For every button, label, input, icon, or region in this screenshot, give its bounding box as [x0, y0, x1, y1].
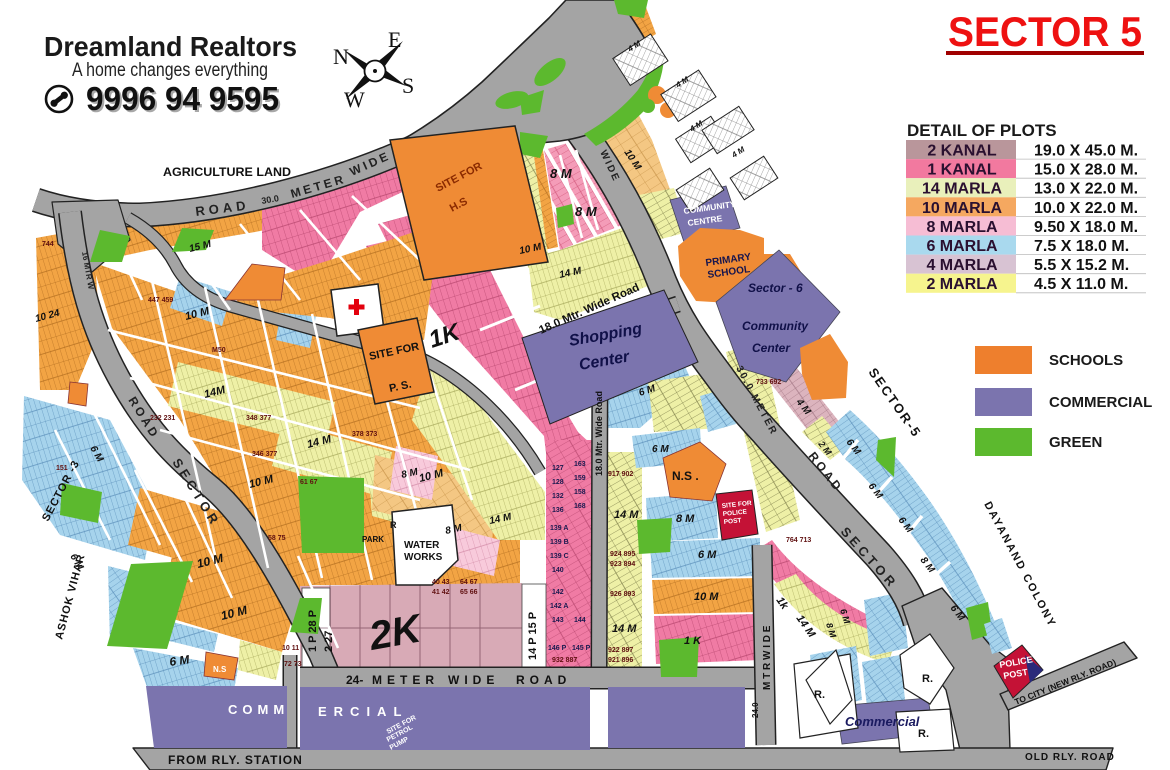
svg-text:8 MARLA: 8 MARLA [926, 219, 998, 236]
svg-text:348 377: 348 377 [246, 415, 271, 422]
svg-text:24.0: 24.0 [751, 702, 760, 718]
svg-text:139 A: 139 A [550, 525, 568, 532]
svg-text:4 MARLA: 4 MARLA [926, 257, 998, 274]
svg-text:142 A: 142 A [550, 603, 568, 610]
svg-text:143: 143 [552, 617, 564, 624]
svg-text:R: R [390, 520, 397, 530]
svg-text:159: 159 [574, 475, 586, 482]
svg-text:132: 132 [552, 493, 564, 500]
svg-text:136: 136 [552, 507, 564, 514]
svg-text:2 MARLA: 2 MARLA [926, 276, 998, 293]
svg-text:N.S: N.S [213, 665, 227, 674]
svg-text:R.: R. [814, 689, 825, 701]
svg-text:6 M: 6 M [698, 549, 717, 561]
svg-text:6 MARLA: 6 MARLA [926, 238, 998, 255]
svg-text:ROAD: ROAD [516, 673, 571, 687]
svg-text:10 MARLA: 10 MARLA [922, 200, 1002, 217]
svg-text:72 73: 72 73 [284, 661, 302, 668]
svg-text:E: E [388, 27, 401, 52]
svg-text:SCHOOLS: SCHOOLS [1049, 352, 1123, 369]
svg-text:WORKS: WORKS [404, 552, 443, 563]
svg-text:926 893: 926 893 [610, 591, 635, 598]
svg-text:Center: Center [752, 341, 791, 355]
svg-text:13.0 X 22.0 M.: 13.0 X 22.0 M. [1034, 181, 1138, 198]
svg-text:METER: METER [372, 673, 439, 687]
svg-text:10 M: 10 M [694, 591, 719, 603]
svg-text:8 M: 8 M [676, 513, 695, 525]
svg-text:733 692: 733 692 [756, 379, 781, 386]
svg-text:8 M: 8 M [550, 166, 573, 181]
svg-text:SECTOR 5: SECTOR 5 [948, 8, 1142, 55]
svg-text:W: W [344, 87, 365, 112]
svg-text:24-: 24- [346, 673, 363, 687]
svg-text:14 M: 14 M [614, 509, 639, 521]
svg-text:151: 151 [56, 465, 68, 472]
svg-text:AGRICULTURE LAND: AGRICULTURE LAND [163, 165, 291, 179]
svg-text:S: S [402, 73, 414, 98]
svg-text:142: 142 [552, 589, 564, 596]
svg-text:PARK: PARK [362, 535, 384, 544]
svg-text:1 KANAL: 1 KANAL [927, 162, 997, 179]
svg-text:2 KANAL: 2 KANAL [927, 143, 997, 160]
svg-text:Sector - 6: Sector - 6 [748, 281, 803, 295]
svg-text:58 75: 58 75 [268, 535, 286, 542]
svg-text:65 66: 65 66 [460, 589, 478, 596]
svg-text:M50: M50 [212, 347, 226, 354]
svg-text:378 373: 378 373 [352, 431, 377, 438]
svg-text:2 27: 2 27 [323, 631, 335, 652]
svg-text:9996 94 9595: 9996 94 9595 [86, 80, 279, 117]
svg-text:146 P: 146 P [548, 645, 567, 652]
svg-text:764 713: 764 713 [786, 537, 811, 544]
svg-text:18.0 Mtr. Wide Road: 18.0 Mtr. Wide Road [594, 391, 604, 476]
svg-text:GREEN: GREEN [1049, 434, 1102, 451]
svg-text:145 P: 145 P [572, 645, 591, 652]
svg-text:163: 163 [574, 461, 586, 468]
svg-text:M T R W I D E: M T R W I D E [762, 625, 773, 690]
svg-text:447 459: 447 459 [148, 297, 173, 304]
svg-text:Commercial: Commercial [845, 714, 920, 729]
svg-text:Community: Community [742, 319, 809, 333]
svg-text:DETAIL OF PLOTS: DETAIL OF PLOTS [907, 121, 1057, 140]
svg-text:140: 140 [552, 567, 564, 574]
svg-text:1 P 28 P: 1 P 28 P [307, 610, 319, 652]
svg-text:COMM: COMM [228, 702, 289, 717]
svg-text:932 887: 932 887 [552, 657, 577, 664]
svg-text:WIDE: WIDE [448, 673, 499, 687]
svg-text:158: 158 [574, 489, 586, 496]
svg-text:6 M: 6 M [168, 652, 191, 669]
svg-text:ERCIAL: ERCIAL [318, 704, 408, 719]
svg-text:921 896: 921 896 [608, 657, 633, 664]
svg-text:923 894: 923 894 [610, 561, 635, 568]
svg-text:168: 168 [574, 503, 586, 510]
svg-text:61 67: 61 67 [300, 479, 318, 486]
svg-text:19.0 X 45.0 M.: 19.0 X 45.0 M. [1034, 143, 1138, 160]
svg-text:COMMERCIAL: COMMERCIAL [1049, 394, 1152, 411]
svg-text:R.: R. [922, 673, 933, 685]
svg-text:N: N [333, 44, 349, 69]
svg-text:15.0 X 28.0 M.: 15.0 X 28.0 M. [1034, 162, 1138, 179]
svg-text:WATER: WATER [404, 540, 440, 551]
svg-text:R.: R. [918, 728, 929, 740]
svg-text:Dreamland Realtors: Dreamland Realtors [44, 31, 297, 62]
svg-text:OLD RLY. ROAD: OLD RLY. ROAD [1025, 752, 1115, 763]
svg-text:10.0 X 22.0 M.: 10.0 X 22.0 M. [1034, 200, 1138, 217]
svg-text:744: 744 [42, 241, 54, 248]
svg-text:14 MARLA: 14 MARLA [922, 181, 1002, 198]
svg-text:127: 127 [552, 465, 564, 472]
svg-text:41 42: 41 42 [432, 589, 450, 596]
svg-text:346 377: 346 377 [252, 451, 277, 458]
svg-text:917 902: 917 902 [608, 471, 633, 478]
svg-text:14 P 15 P: 14 P 15 P [527, 612, 539, 660]
svg-text:A home changes everything: A home changes everything [72, 60, 268, 81]
svg-text:40 43: 40 43 [432, 579, 450, 586]
svg-text:139 B: 139 B [550, 539, 569, 546]
svg-text:924 895: 924 895 [610, 551, 635, 558]
svg-text:6 M: 6 M [652, 444, 669, 455]
svg-text:9.50 X 18.0 M.: 9.50 X 18.0 M. [1034, 219, 1138, 236]
svg-text:139 C: 139 C [550, 553, 569, 560]
svg-text:64 67: 64 67 [460, 579, 478, 586]
svg-text:1 K: 1 K [684, 635, 702, 647]
svg-text:232 231: 232 231 [150, 415, 175, 422]
svg-text:922 897: 922 897 [608, 647, 633, 654]
svg-text:144: 144 [574, 617, 586, 624]
svg-text:7.5 X 18.0 M.: 7.5 X 18.0 M. [1034, 238, 1129, 255]
svg-text:128: 128 [552, 479, 564, 486]
svg-text:8 M: 8 M [575, 204, 598, 219]
svg-text:N.S .: N.S . [672, 469, 699, 483]
svg-text:14 M: 14 M [612, 623, 637, 635]
svg-text:4.5 X 11.0 M.: 4.5 X 11.0 M. [1034, 276, 1128, 293]
svg-text:10 11: 10 11 [282, 645, 299, 652]
svg-text:5.5 X 15.2 M.: 5.5 X 15.2 M. [1034, 257, 1129, 274]
svg-text:FROM RLY. STATION: FROM RLY. STATION [168, 753, 303, 767]
